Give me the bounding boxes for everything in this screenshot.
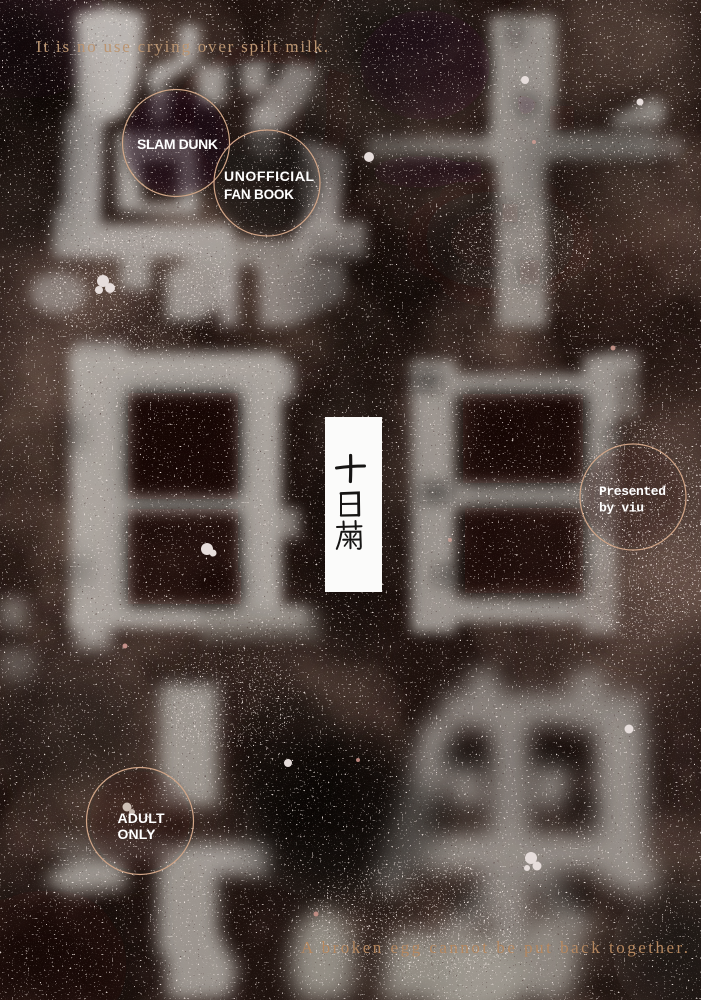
svg-text:Presented: Presented [599, 484, 666, 499]
svg-text:ADULT: ADULT [118, 810, 165, 826]
svg-text:FAN BOOK: FAN BOOK [224, 187, 294, 202]
svg-text:by viu: by viu [599, 501, 644, 516]
svg-text:UNOFFICIAL: UNOFFICIAL [224, 168, 314, 184]
svg-text:SLAM DUNK: SLAM DUNK [137, 136, 218, 152]
svg-text:ONLY: ONLY [118, 826, 157, 842]
